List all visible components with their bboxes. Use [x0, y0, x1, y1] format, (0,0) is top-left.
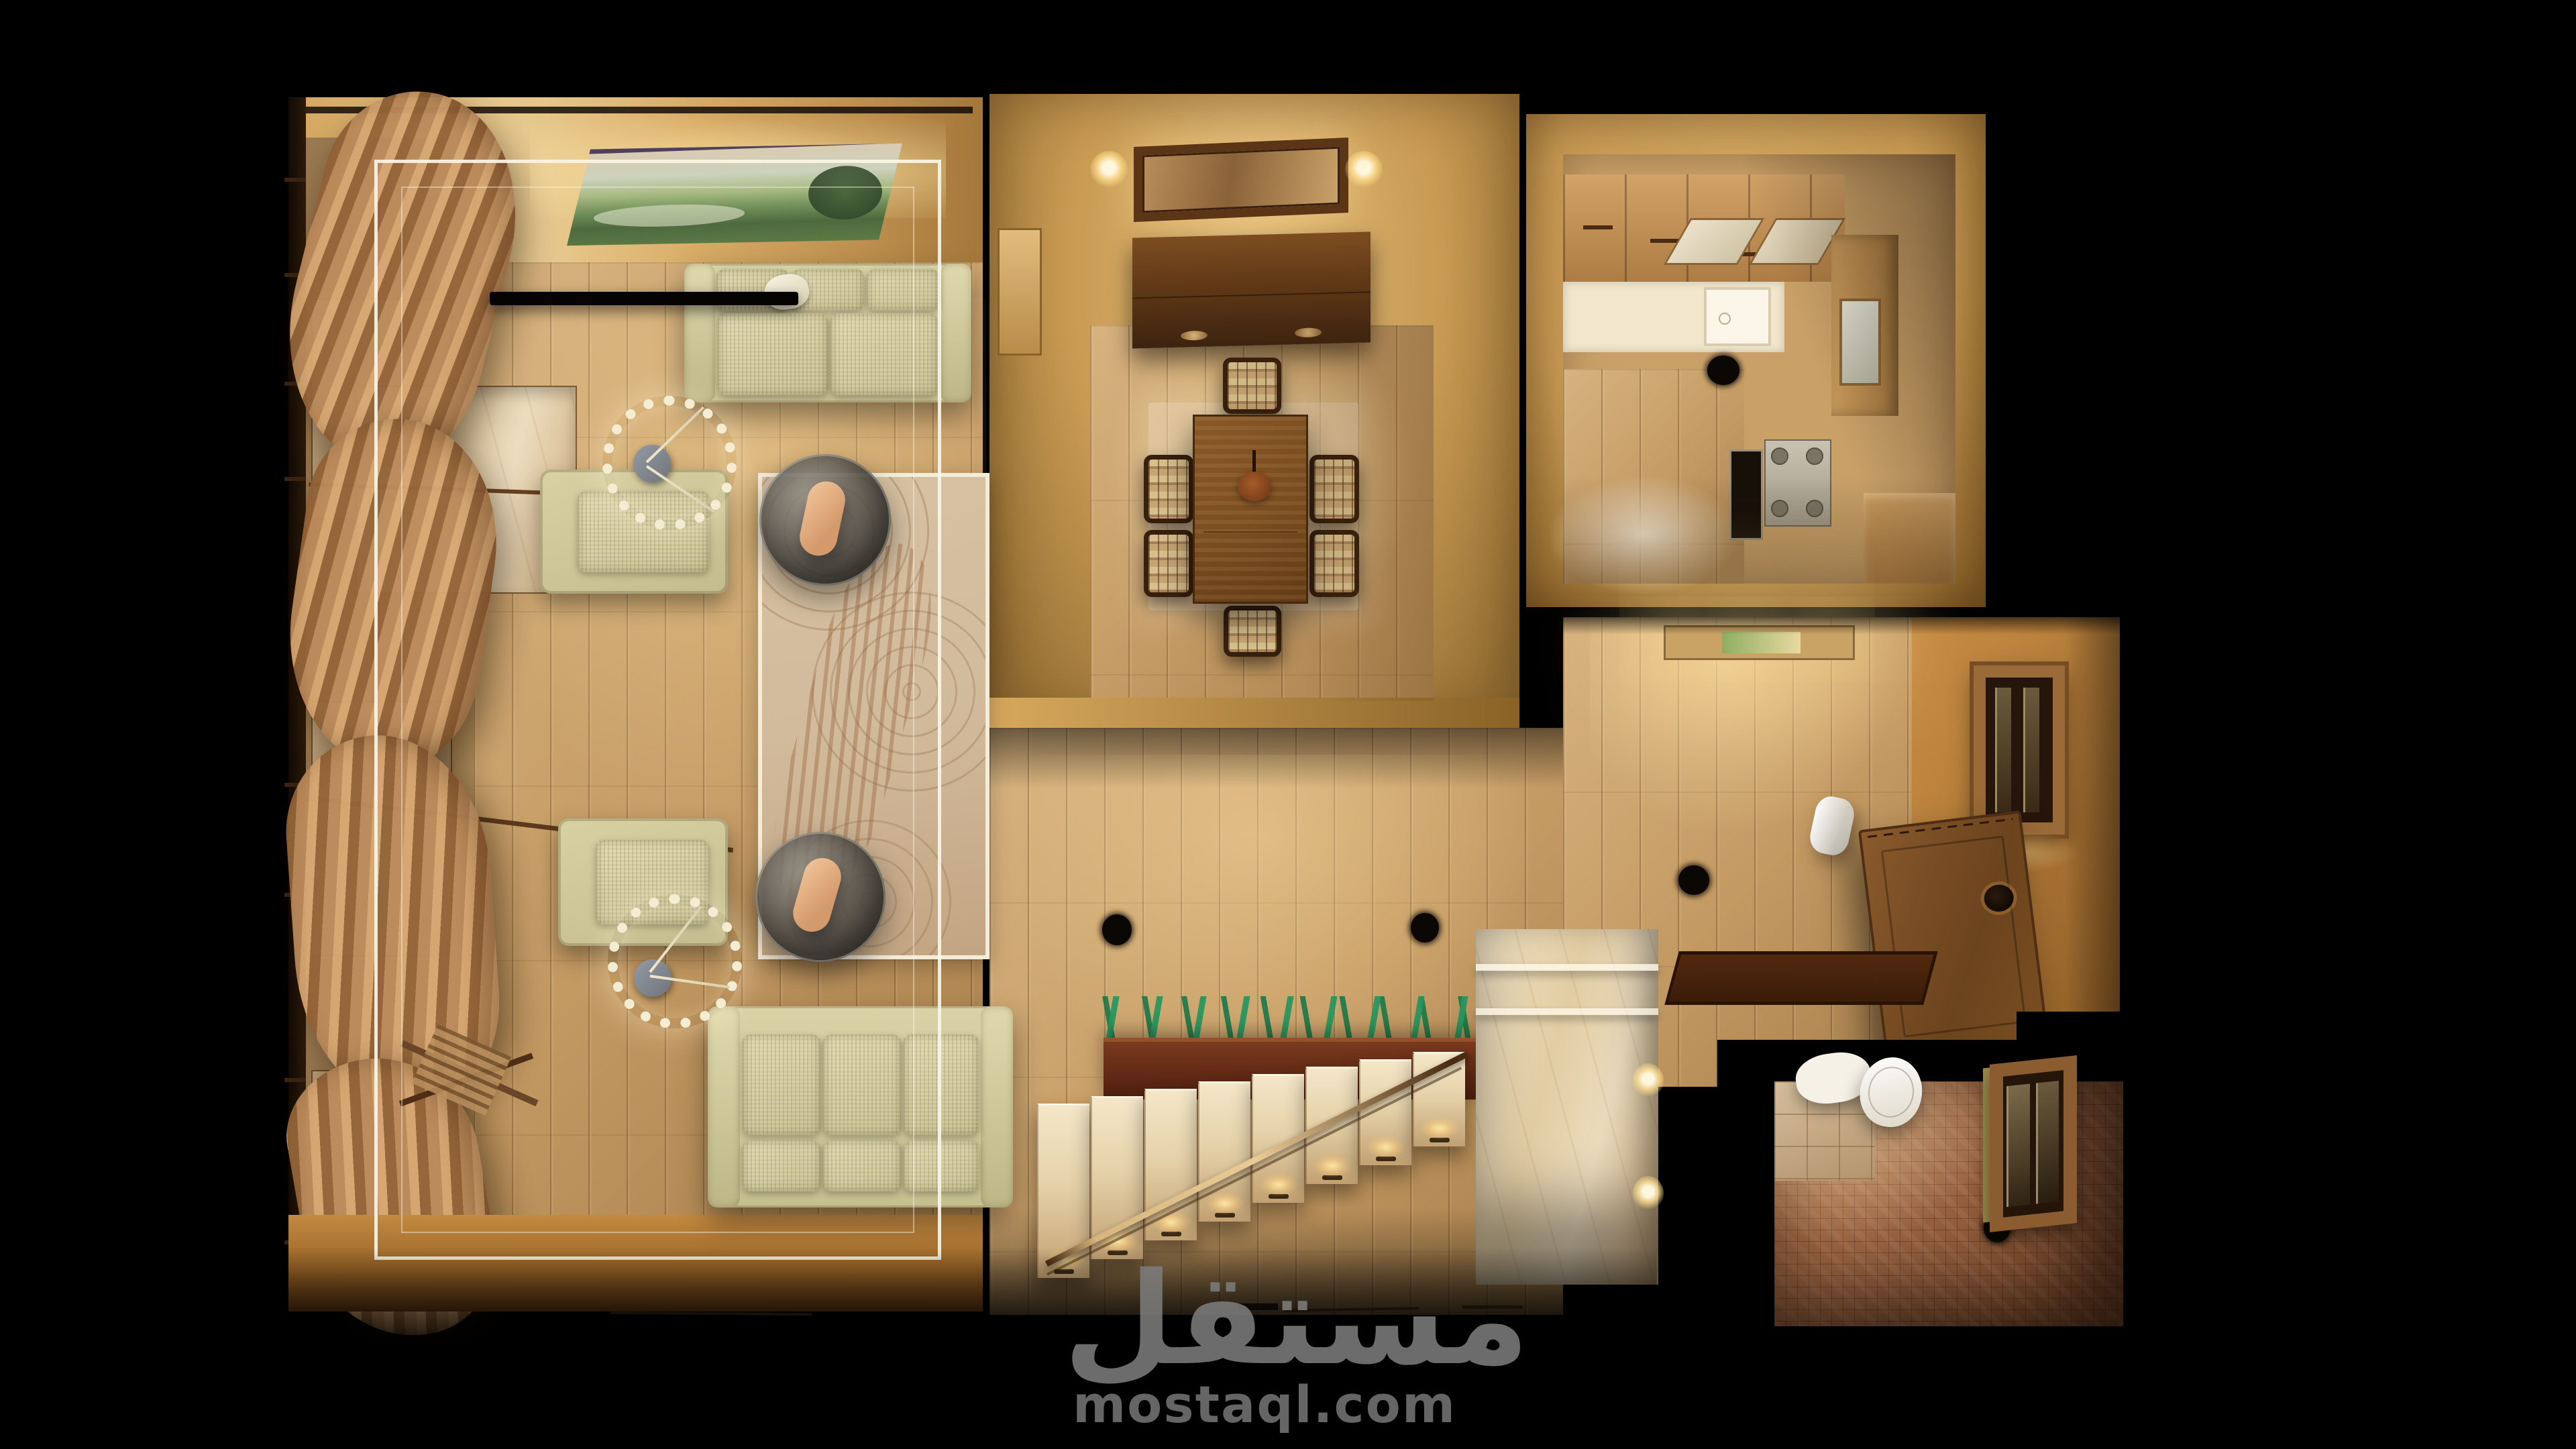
dining-bottom-wall [989, 698, 1519, 728]
cabinet-handle [1650, 239, 1680, 243]
cabinet-handle [1583, 225, 1613, 229]
stair-step [1359, 1059, 1411, 1165]
landing-wall-light [1633, 1063, 1664, 1098]
wall-sconce [1345, 151, 1383, 189]
sofa-arm [981, 1006, 1013, 1207]
chandelier-spoke [646, 406, 705, 463]
planter-plants [1090, 996, 1526, 1043]
light-panel-art [1722, 632, 1801, 653]
niche-slat [2023, 688, 2039, 812]
landing-wall-light [1633, 1176, 1664, 1211]
stair-step [1305, 1067, 1358, 1184]
dining-doorway [998, 228, 1042, 356]
stove-cooktop [1764, 439, 1831, 527]
sideboard-seam [1132, 291, 1371, 299]
stair-step [1144, 1089, 1197, 1240]
dining-chair [1144, 455, 1193, 523]
ring-chandelier [608, 894, 742, 1028]
bath-window-sliver [1983, 1067, 1990, 1222]
door-inner-panel [1881, 835, 2027, 1037]
dining-chair [1224, 606, 1281, 657]
watermark-arabic: مستقل [1063, 1270, 1466, 1369]
burner [1771, 447, 1788, 465]
glass-cabinet-door [1839, 299, 1881, 386]
sofa-arm [941, 264, 971, 402]
dining-room [989, 94, 1519, 728]
dining-chair [1309, 455, 1359, 523]
dining-chair [1223, 358, 1281, 414]
table-centerpiece [1238, 472, 1271, 501]
wall-mirror [1134, 138, 1348, 222]
sink-drain [1719, 313, 1731, 325]
base-cabinet [1864, 493, 1955, 584]
sideboard [1132, 231, 1371, 348]
hall-top-shadow [989, 728, 1563, 788]
chandelier-spoke [649, 906, 702, 973]
landing-step-ridge [1476, 1008, 1658, 1015]
kitchen [1526, 114, 1986, 607]
ring-chandelier [602, 396, 737, 530]
counter-downlight-hole [1707, 356, 1739, 385]
wall-niche-window [1974, 665, 2065, 835]
watermark: مستقل mostaql.com [1063, 1270, 1466, 1434]
window-pane [2006, 1083, 2029, 1207]
burner [1806, 447, 1823, 465]
niche-slat [1995, 688, 2011, 812]
landing-step-ridge [1476, 964, 1658, 971]
sideboard-handle [1181, 331, 1207, 341]
dining-chair [1144, 530, 1193, 597]
watermark-latin: mostaql.com [1063, 1375, 1466, 1434]
floor-downlight [1678, 865, 1709, 895]
entry-top-shadow [1563, 617, 2120, 635]
oven [1729, 449, 1763, 540]
stair-step [1198, 1081, 1250, 1222]
toilet-seat-line [1864, 1063, 1918, 1122]
sideboard-handle [1295, 327, 1322, 337]
bathroom [1717, 1040, 2180, 1355]
living-room [288, 97, 983, 1311]
window-pane [2036, 1081, 2059, 1204]
burner [1771, 500, 1788, 517]
doormat [1664, 951, 1937, 1005]
dining-chair [1309, 530, 1359, 597]
floor-downlight [1102, 914, 1132, 945]
floor-downlight [1411, 913, 1439, 943]
wall-sconce [1090, 151, 1128, 189]
dining-table [1193, 415, 1308, 604]
bathroom-window [1990, 1055, 2077, 1232]
burner [1806, 500, 1823, 517]
ceiling-cove-outline-inner [401, 186, 914, 1233]
centerpiece-stem [1252, 450, 1256, 474]
chandelier-spoke [646, 466, 715, 514]
table-seam [1203, 531, 1297, 533]
kitchen-sink [1704, 287, 1771, 346]
apartment-floorplan-render: مستقل mostaql.com [0, 0, 2576, 1449]
stair-landing [1476, 929, 1658, 1285]
kitchen-floor-light [1550, 476, 1737, 594]
